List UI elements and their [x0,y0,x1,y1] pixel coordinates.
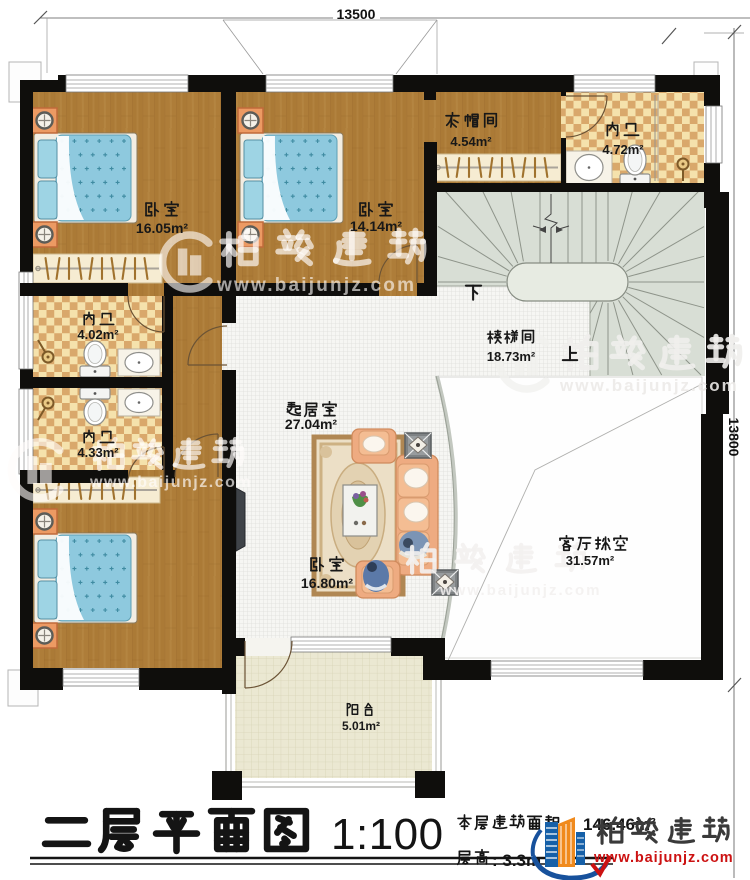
svg-text:4.54m²: 4.54m² [450,134,492,149]
svg-text:www.baijunjz.com: www.baijunjz.com [216,275,416,296]
svg-text:14.14m²: 14.14m² [350,218,402,234]
svg-text:4.72m²: 4.72m² [602,142,644,157]
svg-text:13800: 13800 [726,418,742,457]
svg-text:27.04m²: 27.04m² [285,416,337,432]
svg-text:4.02m²: 4.02m² [77,327,119,342]
svg-text:www.baijunjz.com: www.baijunjz.com [559,376,739,395]
svg-text:5.01m²: 5.01m² [342,719,380,733]
svg-text:www.baijunjz.com: www.baijunjz.com [593,850,734,866]
svg-text:4.33m²: 4.33m² [77,445,119,460]
svg-text:18.73m²: 18.73m² [487,349,536,364]
svg-text:16.80m²: 16.80m² [301,575,353,591]
svg-text:16.05m²: 16.05m² [136,220,188,236]
svg-text:www.baijunjz.com: www.baijunjz.com [89,474,252,491]
svg-text:31.57m²: 31.57m² [566,553,615,568]
svg-text:1:100: 1:100 [331,810,444,859]
svg-text:www.baijunjz.com: www.baijunjz.com [439,582,601,599]
